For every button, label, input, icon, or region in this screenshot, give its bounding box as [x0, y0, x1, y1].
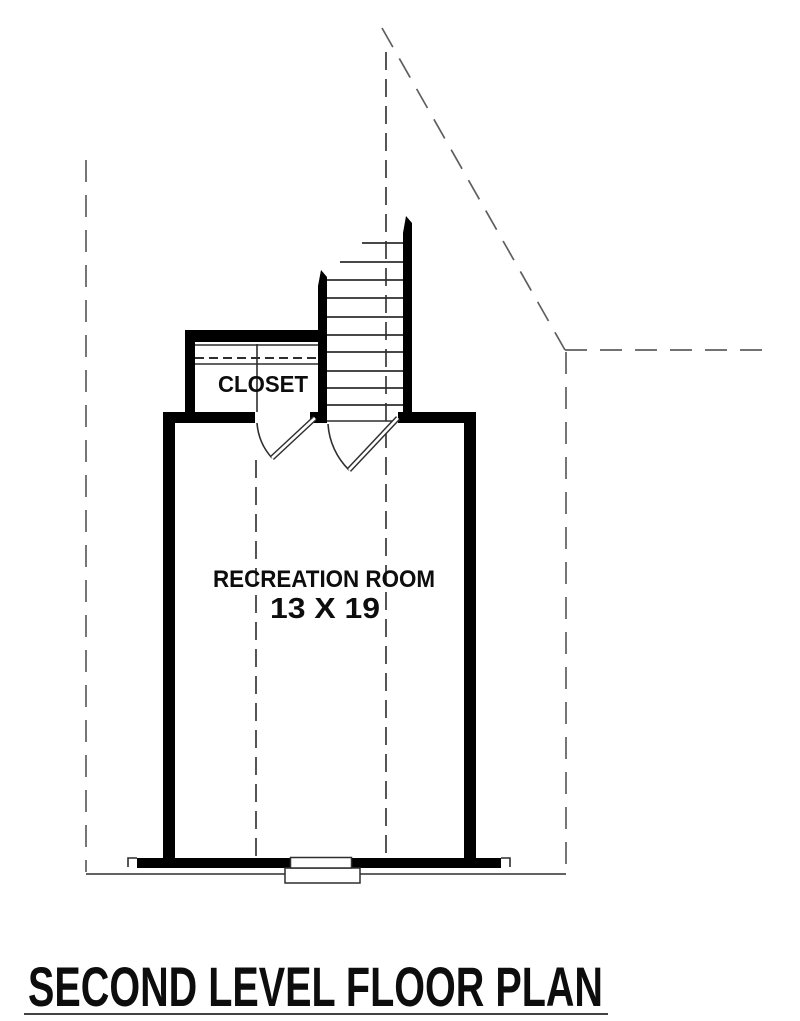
stair-wall-right	[403, 216, 412, 423]
wall-end-tick-left	[128, 858, 137, 867]
room-walls	[128, 412, 510, 868]
room-wall-top-left-segment	[163, 412, 255, 423]
closet-door-leaf-inner	[272, 418, 315, 458]
room-wall-right	[464, 412, 476, 858]
stairs	[318, 216, 412, 423]
window-outer-box	[285, 868, 360, 883]
closet-label: CLOSET	[218, 371, 308, 397]
page-title: SECOND LEVEL FLOOR PLAN	[28, 955, 603, 1018]
room-wall-bottom-left-segment	[137, 858, 290, 868]
stair-door-leaf-inner	[349, 418, 398, 470]
room-wall-left	[163, 412, 175, 858]
floor-plan-drawing: CLOSET RECREATION ROOM 13 X 19 SECOND LE…	[0, 0, 800, 1021]
floor-plan-page: CLOSET RECREATION ROOM 13 X 19 SECOND LE…	[0, 0, 800, 1021]
closet-wall-top	[185, 330, 318, 342]
stair-door-swing-arc	[328, 424, 349, 470]
wall-end-tick-right	[501, 858, 510, 867]
room-wall-bottom-right-segment	[352, 858, 501, 868]
stair-wall-left	[318, 270, 327, 423]
recreation-room-size-label: 13 X 19	[270, 593, 380, 625]
closet-wall-left	[185, 330, 195, 418]
window-inset	[291, 858, 352, 869]
window	[285, 858, 360, 884]
recreation-room-label: RECREATION ROOM	[213, 566, 435, 593]
closet-door-swing-arc	[257, 423, 272, 458]
doors	[257, 418, 398, 470]
roof-outline	[86, 28, 774, 872]
